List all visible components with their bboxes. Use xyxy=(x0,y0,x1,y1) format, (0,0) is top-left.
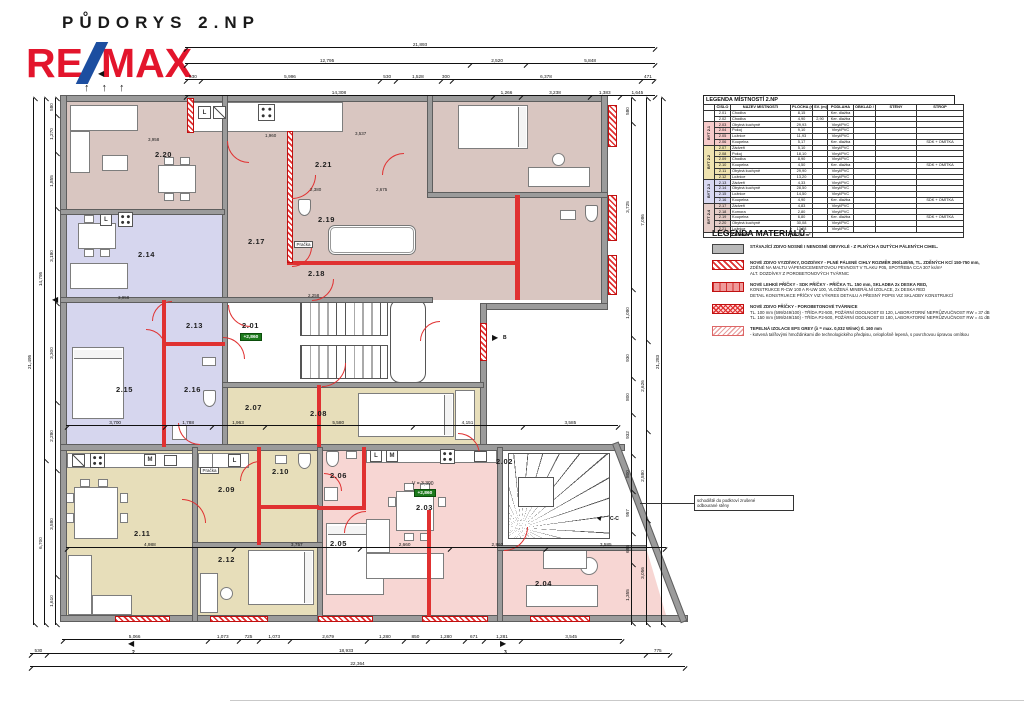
dim-segment: 1,383 xyxy=(590,86,620,96)
room-label-2.18: 2.18 xyxy=(308,269,325,278)
remax-logo: REMAX xyxy=(26,42,192,84)
dim-segment: 14,308 xyxy=(185,86,493,96)
dim-segment: 530 xyxy=(185,70,201,80)
furniture-washer xyxy=(198,453,213,468)
level-badge-+2,860: +2,860 xyxy=(240,333,262,341)
dim-segment: 530 xyxy=(379,70,395,80)
dim-segment: 18,933 xyxy=(47,644,646,654)
inline-dim-2,258: 2,258 xyxy=(308,293,319,298)
dim-chain-right-1: 7,0862,6262,5803,056 xyxy=(637,98,647,625)
dim-segment: 2,660 xyxy=(360,538,449,548)
sink-icon xyxy=(474,451,487,462)
dim-segment: 1,963 xyxy=(212,416,264,426)
room-label-2.09: 2.09 xyxy=(218,485,235,494)
logo-re: RE xyxy=(26,40,83,86)
existing-wall xyxy=(222,382,484,388)
furniture-chair xyxy=(388,497,396,507)
furniture-sofa xyxy=(366,553,444,579)
stair-flight-lower xyxy=(300,345,388,379)
dim-chain-right-0: 5803,7251,0809308009328009576951,355 xyxy=(622,98,632,625)
existing-wall xyxy=(60,209,225,215)
up-arrow-icon: ↑ xyxy=(84,82,102,94)
room-label-2.20: 2.20 xyxy=(155,150,172,159)
furniture-toilet xyxy=(585,205,598,222)
furniture-chair xyxy=(180,193,190,201)
annotation-leader-line xyxy=(640,503,694,504)
furniture-chair xyxy=(66,513,74,523)
room-label-2.02: 2.02 xyxy=(496,457,513,466)
dim-segment: 1,280 xyxy=(367,630,404,640)
furniture-toilet xyxy=(298,199,311,216)
furniture-desk xyxy=(528,167,590,187)
legend-cell: Ker. dlažba xyxy=(828,215,854,221)
new-masonry-hatch xyxy=(422,616,488,622)
appliance-L: L xyxy=(228,454,241,467)
material-item: NOVÉ LEHKÉ PŘÍČKY - SDK PŘÍČKY - PŘÍČKA … xyxy=(712,282,1012,298)
dim-segment: 1,610 xyxy=(46,577,56,625)
dim-segment: 3,585 xyxy=(523,416,618,426)
legend-cell: Ker. dlažba xyxy=(828,116,854,122)
floor-plan: LLMLLM2.202.212.172.192.182.142.132.152.… xyxy=(60,95,705,635)
dim-segment: 1,073 xyxy=(259,630,290,640)
dim-segment: 3,580 xyxy=(46,470,56,577)
room-label-2.15: 2.15 xyxy=(116,385,133,394)
burners-icon xyxy=(440,449,455,464)
furniture-dining-table xyxy=(74,487,118,539)
material-description-line: KONSTRUKCE R-CW 100 A R-UW 100, VLOŽENÁ … xyxy=(750,287,953,292)
existing-wall xyxy=(60,297,433,303)
dim-segment: 3,056 xyxy=(637,520,647,625)
furniture-chair xyxy=(84,215,94,223)
burners-icon xyxy=(258,104,275,121)
existing-wall xyxy=(192,447,198,622)
plan-text-Pračka: Pračka xyxy=(200,467,219,474)
logo-max: MAX xyxy=(101,40,192,86)
inline-dim-1,960: 1,960 xyxy=(265,133,276,138)
new-masonry-hatch xyxy=(530,616,590,622)
material-swatch-icon xyxy=(712,282,744,292)
legend-col-header: SV. (m) xyxy=(813,105,828,111)
apartment-group-label: BYT 2.2 xyxy=(704,145,715,180)
furniture-chair xyxy=(120,493,128,503)
new-masonry-hatch xyxy=(187,98,194,133)
inline-dim-3,537: 3,537 xyxy=(355,131,366,136)
material-description-line: TL. 150 mm (599/249/150) - TŘÍDA P2-500,… xyxy=(750,315,990,320)
legend-col-header: PLOCHA (m²) xyxy=(791,105,813,111)
legend-cell: Ker. dlažba xyxy=(828,162,854,168)
dim-chain-top-2: 5305,9965301,5283006,378471 xyxy=(185,70,655,80)
plan-text-V = 3,390: V = 3,390 xyxy=(412,481,434,487)
new-partition xyxy=(427,510,431,622)
dim-segment: 5,066 xyxy=(62,630,207,640)
room-label-2.14: 2.14 xyxy=(138,250,155,259)
material-description-line: STÁVAJÍCÍ ZDIVO NOSNÉ I NENOSNÉ OBVYKLÉ … xyxy=(750,244,938,249)
furniture-chair xyxy=(84,249,94,257)
existing-wall xyxy=(317,447,323,622)
dim-segment: 1,788 xyxy=(164,416,212,426)
appliance-M: M xyxy=(144,454,156,466)
dim-chain-right-2: 21,283 xyxy=(652,98,662,625)
furniture-sink xyxy=(275,455,287,464)
dim-segment: 6,700 xyxy=(35,461,45,625)
dim-segment: 2,860 xyxy=(449,538,545,548)
furniture-bathtub xyxy=(328,225,416,255)
burners-icon xyxy=(118,212,133,227)
inline-dim-3,958: 3,958 xyxy=(118,295,129,300)
dim-segment: 2,520 xyxy=(469,54,525,64)
drawing-sheet: PŮDORYS 2.NP REMAX ↑↑↑ LLMLLM2.202.212.1… xyxy=(0,0,1024,725)
dim-segment: 2,679 xyxy=(290,630,367,640)
furniture-chair xyxy=(100,249,110,257)
dim-segment: 1,073 xyxy=(207,630,238,640)
existing-wall xyxy=(497,447,503,622)
new-masonry-hatch xyxy=(115,616,170,622)
room-label-2.04: 2.04 xyxy=(535,579,552,588)
dim-chain-bottom-1: 53018,933775 xyxy=(30,644,670,654)
furniture-bed xyxy=(248,550,314,605)
sink-icon xyxy=(164,455,177,466)
dim-segment: 1,080 xyxy=(622,289,632,337)
room-legend-table: ČÍSLONÁZEV MÍSTNOSTIPLOCHA (m²)SV. (m)PO… xyxy=(703,104,964,238)
new-partition xyxy=(515,195,520,300)
dim-chain-mid-1: 4,9883,7572,6602,8603,585 xyxy=(66,538,666,548)
dim-segment: 580 xyxy=(622,98,632,124)
dim-chain-top-1: 12,7952,5205,848 xyxy=(185,54,655,64)
room-label-2.07: 2.07 xyxy=(245,403,262,412)
section-marker-icon: ◀ xyxy=(128,640,134,648)
apartment-group-label xyxy=(704,110,715,122)
section-marker-icon: ▶ xyxy=(492,334,498,342)
legend-col-header: PODLAHA xyxy=(828,105,854,111)
furniture-sofa xyxy=(92,595,132,615)
plan-text-Pračka: Pračka xyxy=(294,241,313,248)
dim-segment: 5,580 xyxy=(264,416,412,426)
spiral-stair-post xyxy=(518,477,554,507)
existing-wall xyxy=(427,95,433,195)
dim-segment: 21,893 xyxy=(185,38,655,48)
furniture-chair xyxy=(220,587,233,600)
appliance-L: L xyxy=(100,214,112,226)
furniture-coffee-table xyxy=(102,155,128,171)
dim-chain-bottom-2: 22,364 xyxy=(30,657,685,667)
dim-chain-top-0: 21,893 xyxy=(185,38,655,48)
material-item: NOVÉ ZDIVO VYZDÍVKY, DOZDÍVKY - PLNÉ PÁL… xyxy=(712,260,1012,276)
furniture-desk xyxy=(200,573,218,613)
legend-cell: Ker. dlažba xyxy=(828,110,854,116)
new-masonry-hatch xyxy=(318,616,373,622)
section-label-3: 3 xyxy=(504,650,507,656)
dim-segment: 3,300 xyxy=(46,304,56,403)
section-marker-icon: ▶ xyxy=(500,640,506,648)
section-label-b: B xyxy=(503,335,507,341)
material-item: NOVÉ ZDIVO PŘÍČKY - POROBETONOVÉ TVÁRNIC… xyxy=(712,304,1012,320)
room-label-2.16: 2.16 xyxy=(184,385,201,394)
slash-icon xyxy=(213,106,226,119)
room-label-2.10: 2.10 xyxy=(272,467,289,476)
dim-segment: 800 xyxy=(622,379,632,415)
dim-segment: 1,270 xyxy=(46,115,56,153)
inline-dim-3,958: 3,958 xyxy=(148,137,159,142)
appliance-L: L xyxy=(370,450,382,462)
dim-segment: 4,151 xyxy=(412,416,522,426)
furniture-dresser xyxy=(526,585,598,607)
dim-segment: 1,645 xyxy=(620,86,655,96)
dim-segment: 1,266 xyxy=(493,86,520,96)
new-masonry-hatch xyxy=(608,195,617,241)
material-swatch-icon xyxy=(712,244,744,254)
material-description-line: ALT. DOZDÍVKY Z POROBETONOVÝCH TVÁRNIC xyxy=(750,271,980,276)
dim-chain-left-1: 14,7956,700 xyxy=(35,98,45,625)
up-arrow-icon: ↑ xyxy=(102,82,120,94)
furniture-sofa xyxy=(70,263,128,289)
dim-segment: 3,700 xyxy=(66,416,164,426)
room-label-2.11: 2.11 xyxy=(134,529,151,538)
dim-segment: 1,280 xyxy=(428,630,465,640)
inline-dim-2,675: 2,675 xyxy=(376,187,387,192)
existing-wall xyxy=(60,95,608,102)
dim-segment: 300 xyxy=(441,70,451,80)
existing-wall xyxy=(601,95,608,310)
existing-wall xyxy=(222,95,228,450)
dim-segment: 3,757 xyxy=(234,538,360,548)
material-swatch-icon xyxy=(712,304,744,314)
furniture-bed xyxy=(458,105,528,149)
inline-dim-2,380: 2,380 xyxy=(310,187,321,192)
furniture-chair xyxy=(66,493,74,503)
furniture-toilet xyxy=(203,390,216,407)
furniture-chair xyxy=(120,513,128,523)
furniture-sofa xyxy=(68,555,92,615)
furniture-toilet xyxy=(298,453,311,469)
room-label-2.21: 2.21 xyxy=(315,160,332,169)
dim-segment: 695 xyxy=(622,534,632,565)
room-label-2.06: 2.06 xyxy=(330,471,347,480)
existing-wall xyxy=(480,303,608,310)
furniture-sink xyxy=(346,451,357,459)
dim-segment: 2,280 xyxy=(46,402,56,470)
existing-wall xyxy=(60,444,625,451)
dim-segment: 21,495 xyxy=(24,98,34,625)
stair-annotation: schodiště do podkroví zrušené odbourané … xyxy=(694,495,794,511)
apartment-group-label: BYT 2.3 xyxy=(704,180,715,203)
legend-cell: Ker. dlažba xyxy=(828,197,854,203)
material-description-line: - kotvená talířovými hmoždinkami dle tec… xyxy=(750,332,969,337)
page-title: PŮDORYS 2.NP xyxy=(62,13,260,33)
slash-icon xyxy=(72,454,85,467)
dim-segment: 3,238 xyxy=(520,86,590,96)
furniture-chair xyxy=(80,479,90,487)
dim-segment: 932 xyxy=(622,414,632,455)
dim-segment: 3,725 xyxy=(622,124,632,290)
dim-segment: 3,180 xyxy=(46,209,56,304)
new-masonry-hatch xyxy=(608,255,617,295)
room-label-2.01: 2.01 xyxy=(242,321,259,330)
furniture-chair xyxy=(98,479,108,487)
room-legend-title: LEGENDA MÍSTNOSTÍ 2.NP xyxy=(703,95,955,104)
furniture-dining-table xyxy=(158,165,196,193)
dim-chain-top-3: 14,3081,2663,2381,3831,645 xyxy=(185,86,655,96)
appliance-M: M xyxy=(386,450,398,462)
furniture-sink xyxy=(202,357,216,366)
legend-cell: Ker. dlažba xyxy=(828,139,854,145)
dim-segment: 21,283 xyxy=(652,98,662,625)
section-marker-icon: ◀ xyxy=(52,296,58,304)
stair-annotation-line2: odbourané stěny xyxy=(697,503,791,509)
material-item: STÁVAJÍCÍ ZDIVO NOSNÉ I NENOSNÉ OBVYKLÉ … xyxy=(712,244,1012,254)
furniture-chair xyxy=(438,497,446,507)
level-badge-+2,860: +2,860 xyxy=(414,489,436,497)
dim-segment: 5,996 xyxy=(201,70,380,80)
dim-segment: 725 xyxy=(238,630,259,640)
dim-segment: 530 xyxy=(30,644,47,654)
dim-segment: 22,364 xyxy=(30,657,685,667)
dim-segment: 1,528 xyxy=(395,70,441,80)
dim-segment: 6,378 xyxy=(451,70,641,80)
dim-segment: 850 xyxy=(403,630,427,640)
new-masonry-hatch xyxy=(480,323,487,361)
new-partition xyxy=(317,506,366,510)
up-arrow-icon: ↑ xyxy=(119,82,137,94)
section-label-cc: C-C xyxy=(610,516,619,522)
furniture-chair xyxy=(552,153,565,166)
dim-segment: 4,988 xyxy=(66,538,234,548)
material-swatch-icon xyxy=(712,326,744,336)
room-label-2.03: 2.03 xyxy=(416,503,433,512)
furniture-sink xyxy=(560,210,576,220)
dim-chain-left-2: 21,495 xyxy=(24,98,34,625)
furniture-chair xyxy=(180,157,190,165)
dim-segment: 957 xyxy=(622,491,632,534)
dim-segment: 471 xyxy=(641,70,655,80)
sheet-border-line xyxy=(230,700,1024,701)
section-marker-icon: ◀ xyxy=(98,70,104,78)
dim-segment: 930 xyxy=(622,337,632,378)
materials-legend-items: STÁVAJÍCÍ ZDIVO NOSNÉ I NENOSNÉ OBVYKLÉ … xyxy=(712,244,1012,337)
dim-segment: 775 xyxy=(646,644,671,654)
appliance-L: L xyxy=(198,106,211,119)
legend-col-header: OBKLAD / DLAŽBA xyxy=(854,105,876,111)
dim-segment: 3,585 xyxy=(545,538,666,548)
dim-chain-mid-0: 3,7001,7881,9635,5804,1513,585 xyxy=(66,416,618,426)
stair-landing xyxy=(390,299,426,383)
new-partition xyxy=(362,447,366,510)
materials-legend: LEGENDA MATERIÁLŮ STÁVAJÍCÍ ZDIVO NOSNÉ … xyxy=(712,228,1012,343)
dim-chain-left-0: 5801,2701,8553,1803,3002,2803,5801,610 xyxy=(46,98,56,625)
furniture-dining-table xyxy=(78,223,116,249)
new-partition xyxy=(257,505,319,509)
dim-segment: 3,545 xyxy=(520,630,622,640)
furniture-sofa xyxy=(70,131,90,173)
room-label-2.19: 2.19 xyxy=(318,215,335,224)
dim-segment: 14,795 xyxy=(35,98,45,461)
apartment-group-label: BYT 2.1 xyxy=(704,122,715,145)
room-label-2.17: 2.17 xyxy=(248,237,265,246)
room-legend: LEGENDA MÍSTNOSTÍ 2.NP ČÍSLONÁZEV MÍSTNO… xyxy=(703,95,955,238)
dim-segment: 2,626 xyxy=(637,341,647,431)
dim-segment: 800 xyxy=(622,456,632,492)
furniture-bed xyxy=(358,393,454,437)
dim-segment: 1,355 xyxy=(622,565,632,625)
material-description-line: DETAIL KONSTRUKCE PŘÍČKY VIZ VÝKRES DETA… xyxy=(750,293,953,298)
dim-segment: 671 xyxy=(464,630,483,640)
dim-segment: 2,580 xyxy=(637,431,647,520)
furniture-toilet xyxy=(326,451,339,467)
dim-segment: 5,848 xyxy=(525,54,655,64)
new-partition xyxy=(162,342,225,346)
material-item: TEPELNÁ IZOLACE EPS GREY (λ = max. 0,032… xyxy=(712,326,1012,337)
dim-segment: 1,855 xyxy=(46,153,56,208)
north-arrows: ↑↑↑ xyxy=(84,82,137,94)
dim-chain-bottom-0: 5,0661,0737251,0732,6791,2808501,2806711… xyxy=(62,630,622,640)
material-swatch-icon xyxy=(712,260,744,270)
room-label-2.13: 2.13 xyxy=(186,321,203,330)
dim-segment: 7,086 xyxy=(637,98,647,341)
burners-icon xyxy=(90,453,105,468)
new-masonry-hatch xyxy=(608,105,617,147)
furniture-bed xyxy=(72,347,124,419)
materials-legend-title: LEGENDA MATERIÁLŮ xyxy=(712,228,1012,238)
legend-col-header: ČÍSLO xyxy=(715,105,731,111)
dim-segment: 12,795 xyxy=(185,54,469,64)
new-masonry-hatch xyxy=(210,616,268,622)
furniture-chair xyxy=(164,193,174,201)
new-partition xyxy=(287,261,520,265)
furniture-sofa xyxy=(70,105,138,131)
stair-flight-upper xyxy=(300,302,388,336)
section-label-2: 2 xyxy=(132,650,135,656)
room-label-2.12: 2.12 xyxy=(218,555,235,564)
